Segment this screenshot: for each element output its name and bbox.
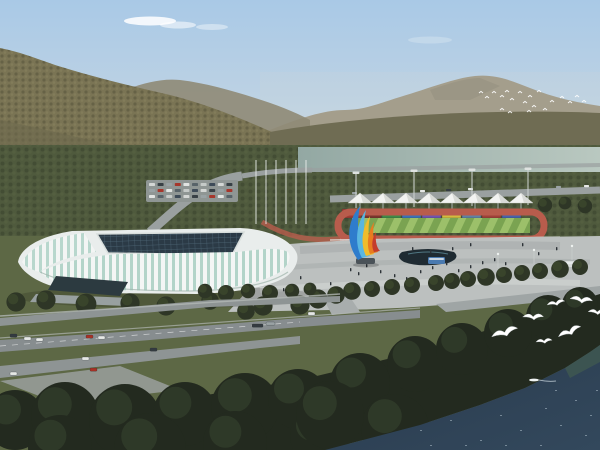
pedestrian (470, 243, 471, 246)
pedestrian (538, 252, 539, 255)
arena-building (15, 228, 325, 308)
car (420, 190, 425, 192)
rendering-canvas (0, 0, 600, 450)
pedestrian (556, 247, 557, 250)
parked-car (175, 189, 181, 192)
car (86, 335, 93, 338)
parked-car (175, 195, 181, 198)
water-sparkle (465, 445, 467, 446)
pedestrian (522, 243, 523, 246)
pedestrian (505, 262, 506, 265)
pedestrian (330, 282, 331, 285)
tree-highlight (218, 378, 252, 412)
tree (514, 265, 530, 281)
parked-car (218, 189, 224, 192)
water-sparkle (575, 400, 577, 401)
car (10, 334, 17, 337)
parked-car (158, 183, 164, 186)
pedestrian (482, 261, 483, 264)
tree (241, 284, 255, 298)
parked-car (183, 195, 189, 198)
tree (559, 197, 572, 210)
car (308, 312, 315, 315)
water-sparkle (590, 415, 592, 416)
pedestrian (432, 266, 433, 269)
water-sparkle (505, 445, 507, 446)
water-sparkle (520, 430, 522, 431)
parked-car (209, 183, 215, 186)
parked-car (166, 183, 172, 186)
parked-car (158, 195, 164, 198)
water-sparkle (585, 435, 587, 436)
pedestrian (380, 270, 381, 273)
parked-car (201, 189, 207, 192)
parked-car (226, 183, 232, 186)
pedestrian (420, 270, 421, 273)
tree (532, 263, 548, 279)
car (10, 372, 17, 375)
tree (477, 268, 495, 286)
car (556, 186, 561, 188)
tree-highlight (368, 399, 402, 433)
tree (343, 282, 361, 300)
pedestrian (430, 250, 431, 253)
parked-car (218, 195, 224, 198)
tree-highlight (274, 374, 304, 404)
water-sparkle (545, 408, 547, 409)
car (266, 322, 275, 325)
parked-car (209, 189, 215, 192)
tree (444, 273, 460, 289)
tree (6, 292, 25, 311)
parked-car (201, 195, 207, 198)
tree (304, 283, 317, 296)
parked-car (201, 183, 207, 186)
car (24, 337, 31, 340)
tree (496, 267, 512, 283)
pedestrian (470, 265, 471, 268)
car (584, 185, 589, 187)
car (36, 338, 43, 341)
pedestrian (350, 268, 351, 271)
tree-highlight (159, 387, 191, 419)
car (90, 368, 97, 371)
tree-highlight (209, 416, 241, 448)
tree (572, 259, 588, 275)
parked-car (192, 195, 198, 198)
parked-car (226, 189, 232, 192)
tree (36, 290, 55, 309)
water-sparkle (555, 390, 557, 391)
water-sparkle (540, 445, 542, 446)
car (446, 189, 451, 191)
water-sparkle (500, 415, 502, 416)
parked-car (158, 189, 164, 192)
pedestrian (446, 262, 447, 265)
car (98, 336, 105, 339)
parked-car (192, 183, 198, 186)
car (82, 357, 89, 360)
pedestrian (412, 247, 413, 250)
tree (460, 271, 476, 287)
tree (404, 277, 420, 293)
parking-lot (146, 180, 238, 202)
tree (538, 198, 552, 212)
parked-car (166, 195, 172, 198)
tree-highlight (96, 389, 132, 425)
arena-glass-roof (97, 232, 244, 255)
tree (198, 284, 212, 298)
parked-car (209, 195, 215, 198)
tree (551, 260, 569, 278)
tree (578, 199, 592, 213)
tree-highlight (303, 386, 337, 420)
water-sparkle (450, 420, 452, 421)
water-feature-pool (399, 249, 457, 265)
parked-car (183, 183, 189, 186)
athletics-field (352, 218, 530, 233)
parked-car (218, 183, 224, 186)
bus (428, 257, 445, 264)
pedestrian (300, 276, 301, 279)
water-sparkle (480, 440, 482, 441)
parked-car (166, 189, 172, 192)
tree-highlight (393, 340, 421, 368)
water-sparkle (596, 390, 598, 391)
pedestrian (394, 274, 395, 277)
tree (364, 281, 380, 297)
parked-car (175, 183, 181, 186)
water-sparkle (430, 445, 432, 446)
tree (218, 285, 234, 301)
parked-car (192, 189, 198, 192)
parked-car (183, 189, 189, 192)
water-sparkle (420, 430, 422, 431)
pedestrian (494, 258, 495, 261)
pedestrian (358, 272, 359, 275)
car (150, 348, 157, 351)
parked-car (149, 189, 155, 192)
pedestrian (458, 269, 459, 272)
scene (0, 0, 600, 450)
water-sparkle (560, 425, 562, 426)
parked-car (149, 183, 155, 186)
tree-highlight (441, 327, 467, 353)
parked-car (149, 195, 155, 198)
tree (428, 275, 444, 291)
car (252, 324, 263, 327)
parked-car (226, 195, 232, 198)
tree (384, 279, 400, 295)
pedestrian (452, 247, 453, 250)
